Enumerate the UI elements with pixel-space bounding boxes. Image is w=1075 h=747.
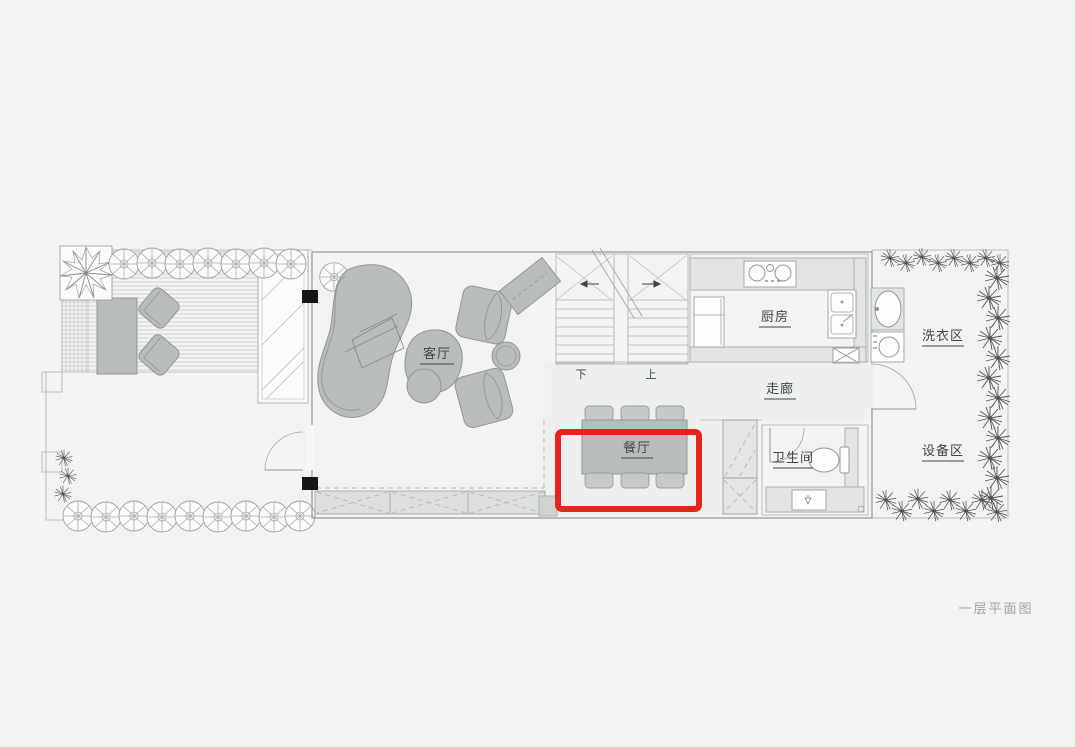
outdoor-table — [97, 298, 137, 374]
terrace-door — [265, 425, 314, 470]
terrace-step — [42, 372, 62, 392]
bathroom-label: 卫生间 — [772, 451, 814, 466]
laundry-sink — [871, 288, 904, 330]
column-marker — [302, 477, 318, 490]
corridor-label: 走廊 — [766, 381, 794, 397]
right-yard-vines-bottom — [876, 489, 1007, 522]
kitchen-label: 厨房 — [761, 309, 789, 325]
tv-cabinet — [315, 488, 545, 514]
toilet — [809, 447, 849, 473]
column-marker — [302, 290, 318, 303]
left-terrace — [42, 246, 315, 532]
plan-caption: 一层平面图 — [958, 602, 1033, 617]
kitchen: 厨房 — [690, 254, 868, 363]
dining-room-label: 餐厅 — [623, 440, 651, 456]
dining-room: 餐厅 — [582, 406, 687, 488]
stairs-up-label: 上 — [646, 368, 657, 381]
laundry-area-label: 洗衣区 — [922, 328, 964, 344]
corner-tree-planter — [60, 246, 112, 300]
equipment-area-label: 设备区 — [922, 443, 964, 459]
kitchen-sink — [828, 290, 856, 338]
ottoman — [407, 369, 441, 403]
dining-chairs-bottom — [585, 473, 684, 488]
closet — [723, 420, 757, 514]
living-room: 客厅 — [265, 258, 561, 516]
left-vine — [55, 450, 77, 503]
laundry-fixtures — [871, 288, 904, 362]
stove — [744, 261, 796, 287]
stairs-down-label: 下 — [576, 368, 587, 381]
window-marker — [833, 348, 859, 363]
armchair — [453, 366, 515, 429]
main-building: 客厅 — [265, 248, 916, 518]
floor-plan: 洗衣区 设备区 客厅 — [0, 0, 1075, 747]
right-yard-vines-top — [881, 248, 1009, 272]
refrigerator — [694, 297, 724, 347]
dining-chairs-top — [585, 406, 684, 421]
side-yard-door — [866, 363, 916, 409]
right-yard-vines-right — [977, 266, 1010, 510]
yard-shrub-row — [63, 501, 315, 532]
bathroom: 卫生间 — [762, 425, 868, 515]
terrace-step — [42, 452, 62, 472]
washing-machine — [871, 332, 904, 362]
living-room-label: 客厅 — [423, 346, 451, 362]
staircase: 下 上 — [556, 248, 688, 381]
wall-stub — [539, 496, 557, 516]
shower-tray — [792, 490, 826, 510]
